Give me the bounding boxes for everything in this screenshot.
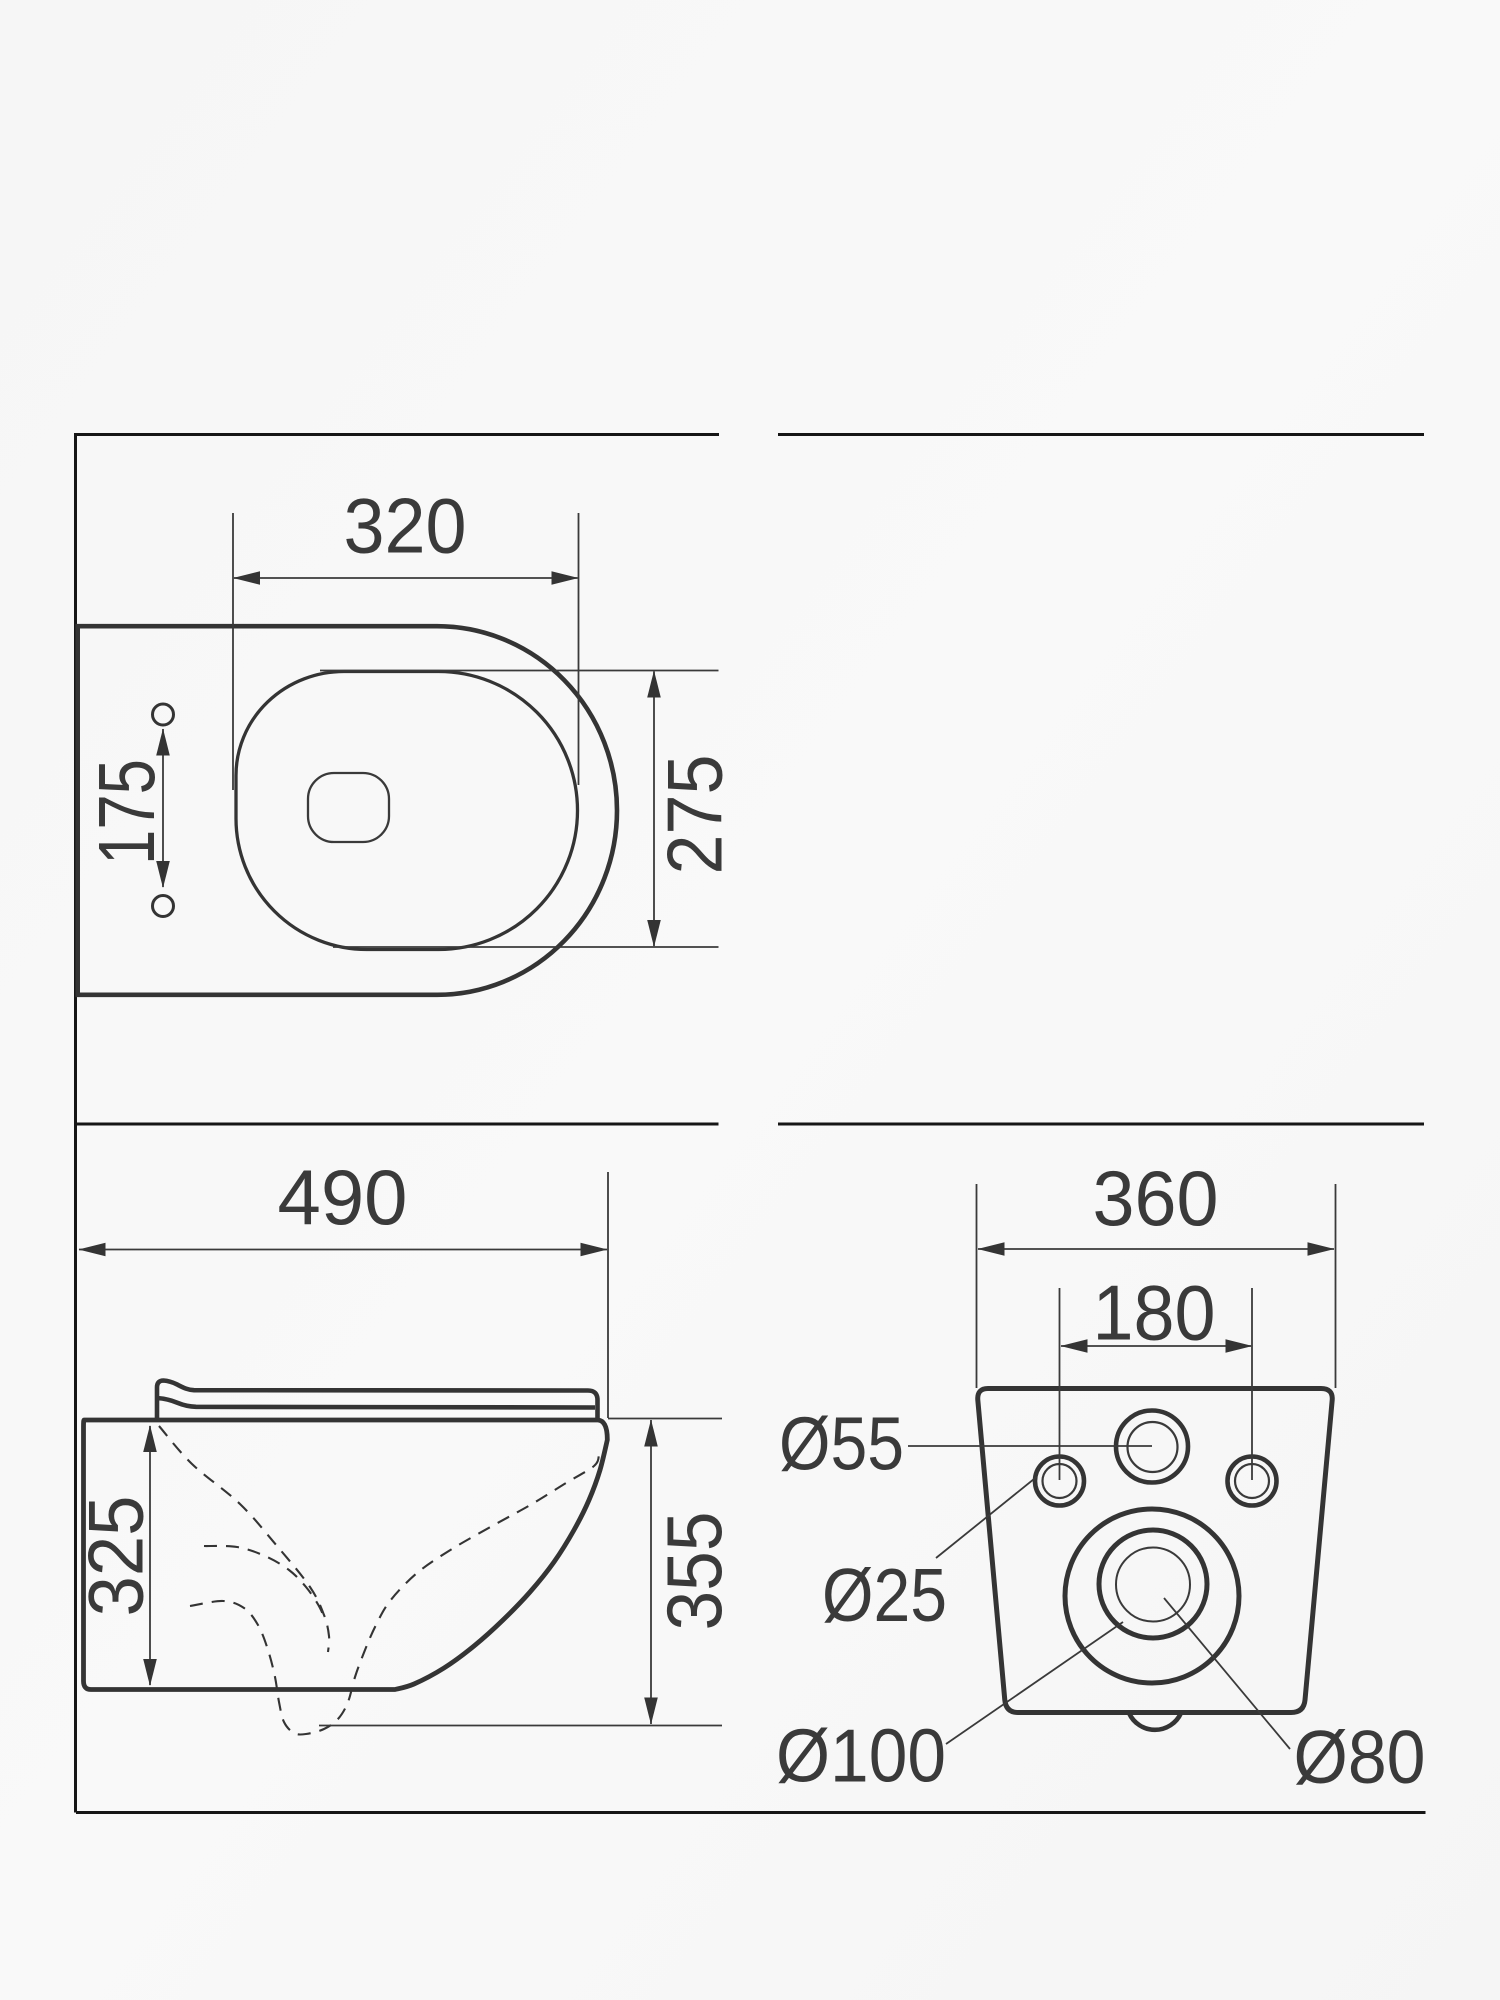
svg-text:325: 325	[72, 1496, 160, 1617]
svg-text:360: 360	[1093, 1154, 1219, 1242]
svg-text:320: 320	[344, 482, 467, 570]
svg-text:490: 490	[278, 1153, 408, 1241]
svg-text:355: 355	[650, 1512, 738, 1631]
svg-text:Ø25: Ø25	[822, 1553, 947, 1637]
svg-text:180: 180	[1093, 1269, 1216, 1357]
svg-text:275: 275	[651, 755, 739, 875]
svg-text:175: 175	[82, 759, 171, 865]
svg-text:Ø80: Ø80	[1294, 1715, 1426, 1799]
svg-text:Ø100: Ø100	[776, 1714, 946, 1798]
svg-text:Ø55: Ø55	[779, 1402, 904, 1486]
